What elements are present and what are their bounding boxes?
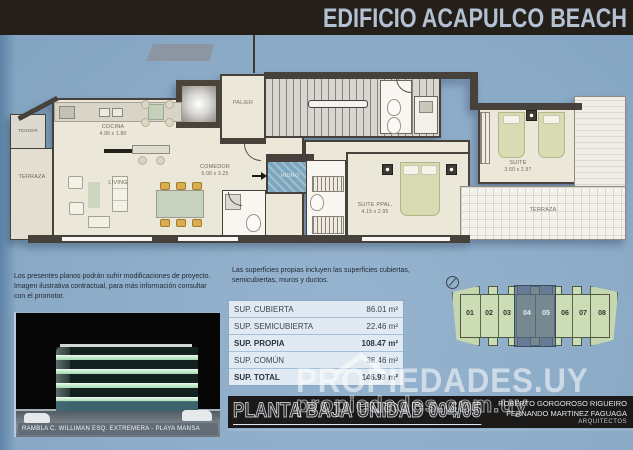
room-terraza-left	[10, 148, 54, 240]
pillow-4	[543, 115, 560, 124]
armchair-2	[69, 202, 84, 215]
table-row: SUP. CUBIERTA 86.01 m²	[229, 301, 403, 318]
unit-number: 04	[518, 310, 536, 317]
dining-chair-2	[176, 182, 186, 190]
bar-underline	[228, 429, 633, 431]
ac-unit-1	[382, 164, 393, 175]
sink-closet	[414, 96, 438, 134]
stove	[59, 106, 75, 119]
keyplan-tooth-b1	[488, 337, 498, 346]
row-label: SUP. COMÚN	[234, 356, 284, 365]
unit-number: 08	[593, 310, 611, 317]
table-row: SUP. SEMICUBIERTA 22.46 m²	[229, 318, 403, 335]
elevator-shaft	[176, 80, 222, 128]
bed-suite-1	[498, 112, 525, 158]
coffee-table	[88, 216, 110, 228]
row-value: 22.46 m²	[366, 322, 398, 331]
keyplan-tooth-t5	[572, 286, 582, 295]
label-terraza-right: TERRAZA	[508, 207, 578, 214]
render-ground-glass	[56, 401, 198, 411]
row-value: 86.01 m²	[366, 305, 398, 314]
sconce-1	[138, 156, 147, 165]
row-label: SUP. SEMICUBIERTA	[234, 322, 313, 331]
room-palier	[220, 74, 266, 140]
sink-unit	[419, 101, 433, 113]
window-suite-ppal	[362, 237, 450, 241]
keyplan-tooth-b5	[572, 337, 582, 346]
window-living	[62, 237, 152, 241]
row-value: 108.47 m²	[362, 339, 398, 348]
north-arrow-icon	[446, 276, 459, 289]
wardrobe-suite	[480, 112, 490, 164]
unit-number: 06	[556, 310, 574, 317]
label-comedor: COMEDOR 6.00 x 3.25	[186, 164, 244, 178]
keyplan-tooth-t1	[488, 286, 498, 295]
wall-suite-top	[470, 103, 582, 110]
label-tender: TENDER	[10, 128, 46, 134]
dining-chair-4	[160, 219, 170, 227]
floor-plan: TENDER TERRAZA COCINA 4.90 x 1.80 LIVING…	[8, 52, 625, 265]
kitchen-stool-2	[165, 100, 174, 109]
building-render: RAMBLA C. WILLIMAN ESQ. EXTREMERA - PLAY…	[14, 312, 220, 437]
building-title: EDIFICIO ACAPULCO BEACH	[323, 3, 627, 34]
row-label: SUP. TOTAL	[234, 373, 280, 382]
render-caption: RAMBLA C. WILLIMAN ESQ. EXTREMERA - PLAY…	[18, 423, 218, 435]
dining-table	[156, 190, 204, 218]
row-label: SUP. CUBIERTA	[234, 305, 294, 314]
header-bar: EDIFICIO ACAPULCO BEACH	[0, 0, 633, 35]
kitchen-table	[148, 104, 164, 120]
elevator-cab	[182, 86, 216, 122]
label-hidro: HIDRO	[266, 173, 314, 180]
wall-bottom	[28, 235, 470, 243]
superficies-note: Las superficies propias incluyen las sup…	[232, 266, 437, 286]
pillow-3	[503, 115, 520, 124]
unit-number: 02	[480, 310, 498, 317]
bed-suite-ppal	[400, 162, 440, 216]
table-row: SUP. PROPIA 108.47 m²	[229, 335, 403, 352]
render-roofline	[60, 344, 192, 347]
flyer-page: EDIFICIO ACAPULCO BEACH	[0, 0, 633, 450]
render-balcony-band-1	[56, 355, 198, 360]
disclaimer-note: Los presentes planos podrán sufrir modif…	[14, 272, 214, 301]
guest-toilet-fixture	[246, 214, 261, 232]
render-balcony-band-3	[56, 383, 198, 388]
wardrobe-hatch-2	[312, 216, 344, 234]
watermark-url: propiedades.com.uy	[296, 392, 528, 418]
label-suite-ppal: SUITE PPAL. 4.15 x 2.95	[352, 202, 398, 216]
unit-number: 05	[537, 310, 555, 317]
kitchen-stool-1	[141, 100, 150, 109]
label-palier: PALIER	[220, 100, 266, 107]
bidet-fixture	[387, 117, 401, 134]
architects-title: ARQUITECTOS	[498, 419, 627, 427]
sconce-2	[156, 156, 165, 165]
kitchen-stool-4	[165, 118, 174, 127]
label-suite: SUITE 3.60 x 2.97	[496, 160, 540, 174]
bed-suite-2	[538, 112, 565, 158]
bar-counter	[132, 145, 170, 154]
toilet-fixture	[387, 99, 401, 116]
wall-top	[264, 72, 476, 79]
render-balcony-band-2	[56, 369, 198, 374]
dining-chair-5	[176, 219, 186, 227]
render-car-left	[24, 413, 50, 423]
ac-unit-2	[446, 164, 457, 175]
suite-bath-toilet	[310, 194, 324, 211]
label-terraza-left: TERRAZA	[10, 174, 54, 181]
pillow-1	[403, 165, 419, 175]
pillow-2	[421, 165, 437, 175]
unit-key-plan: 01 02 03 04 05 06 07 08	[450, 274, 630, 358]
unit-number: 03	[498, 310, 516, 317]
dining-chair-1	[160, 182, 170, 190]
watermark-house-roof-icon	[336, 352, 386, 379]
wardrobe-hatch-1	[312, 176, 344, 192]
stairs-handrail	[308, 100, 368, 108]
dining-chair-3	[192, 182, 202, 190]
armchair-1	[68, 176, 83, 189]
hidro-entry-arrow	[252, 175, 262, 177]
label-living: LIVING	[98, 180, 138, 187]
render-car-right	[182, 410, 212, 421]
breakfast-bar	[104, 149, 132, 153]
wall-above-hidro	[266, 154, 314, 160]
unit-number: 01	[461, 310, 479, 317]
unit-number: 07	[574, 310, 592, 317]
label-cocina: COCINA 4.90 x 1.80	[78, 124, 148, 138]
window-comedor	[178, 237, 238, 241]
ac-unit-3	[526, 110, 537, 121]
dining-chair-6	[192, 219, 202, 227]
sink-1	[99, 108, 110, 117]
sink-2	[112, 108, 123, 117]
row-label: SUP. PROPIA	[234, 339, 285, 348]
